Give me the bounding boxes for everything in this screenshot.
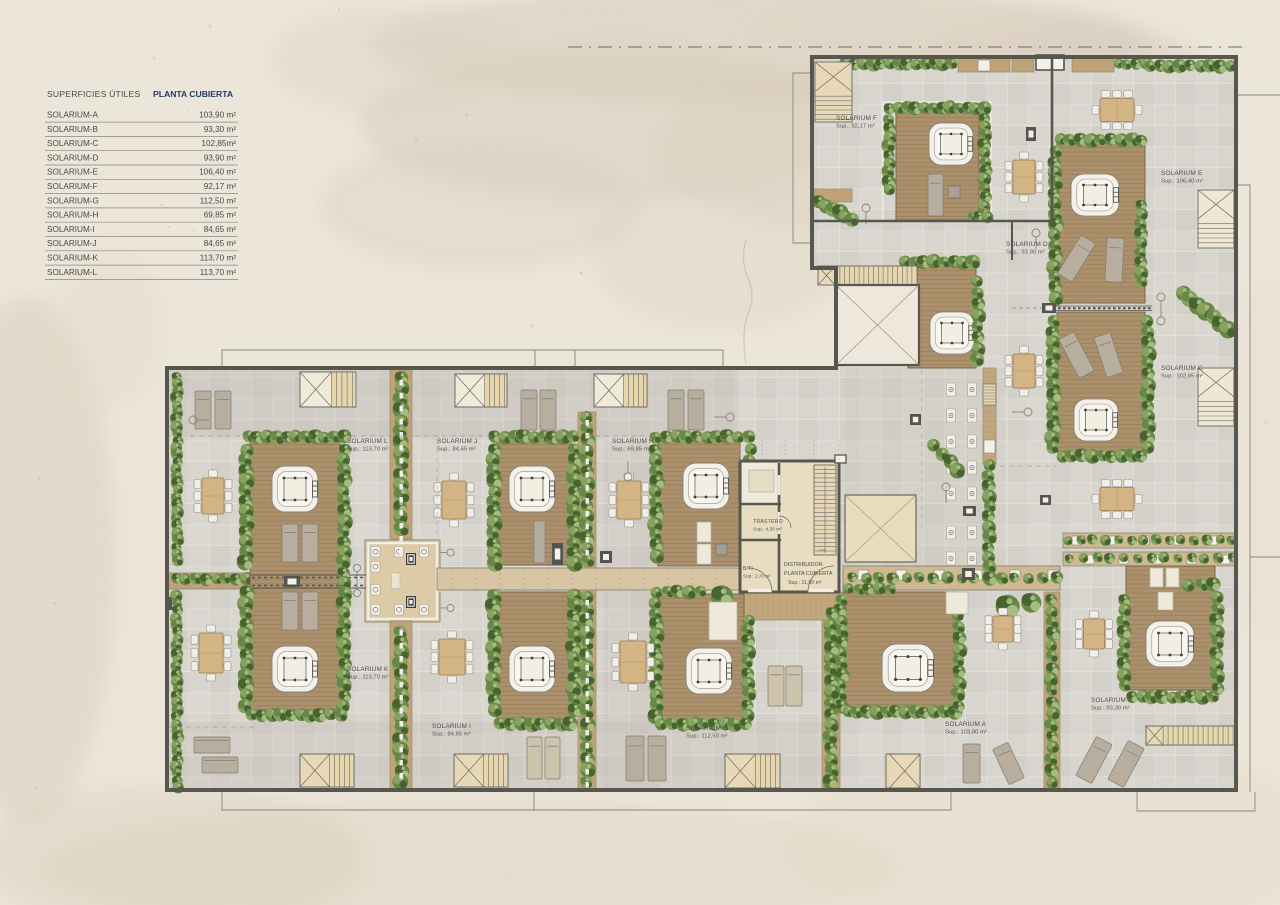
svg-text:SOLARIUM-I: SOLARIUM-I (47, 225, 95, 234)
svg-text:SOLARIUM-E: SOLARIUM-E (47, 168, 98, 177)
svg-text:SOLARIUM-J: SOLARIUM-J (47, 239, 97, 248)
svg-text:113,70 m²: 113,70 m² (200, 254, 237, 263)
svg-text:69,85 m²: 69,85 m² (204, 211, 237, 220)
svg-text:SUPERFICIES ÚTILES: SUPERFICIES ÚTILES (47, 89, 140, 99)
svg-text:B/TI: B/TI (743, 566, 753, 572)
svg-text:84,65 m²: 84,65 m² (204, 239, 237, 248)
svg-text:SOLARIUM-G: SOLARIUM-G (47, 196, 99, 205)
svg-text:Sup.: 102,85 m²: Sup.: 102,85 m² (1161, 374, 1203, 380)
svg-text:Sup.: 2,70 m²: Sup.: 2,70 m² (743, 574, 771, 579)
svg-text:92,17 m²: 92,17 m² (204, 182, 237, 191)
svg-text:Sup.: 112,50 m²: Sup.: 112,50 m² (686, 734, 728, 740)
svg-text:SOLARIUM L: SOLARIUM L (347, 438, 388, 445)
svg-text:Sup.: 92,17 m²: Sup.: 92,17 m² (836, 124, 875, 130)
svg-text:SOLARIUM-F: SOLARIUM-F (47, 182, 98, 191)
svg-text:Sup.: 11,60 m²: Sup.: 11,60 m² (788, 580, 822, 586)
svg-text:SOLARIUM K: SOLARIUM K (347, 666, 389, 673)
svg-text:SOLARIUM I: SOLARIUM I (432, 723, 471, 730)
svg-text:112,50 m²: 112,50 m² (200, 196, 237, 205)
svg-text:SOLARIUM E: SOLARIUM E (1161, 170, 1202, 177)
svg-text:SOLARIUM-B: SOLARIUM-B (47, 125, 98, 134)
svg-text:84,65 m²: 84,65 m² (204, 225, 237, 234)
svg-text:Sup.: 93,30 m²: Sup.: 93,30 m² (1091, 706, 1130, 712)
svg-text:PLANTA CUBIERTA: PLANTA CUBIERTA (153, 89, 233, 99)
svg-text:SOLARIUM A: SOLARIUM A (945, 721, 987, 728)
svg-text:SOLARIUM-K: SOLARIUM-K (47, 254, 98, 263)
svg-text:SOLARIUM D: SOLARIUM D (1006, 241, 1048, 248)
svg-text:SOLARIUM G: SOLARIUM G (686, 725, 728, 732)
svg-text:SOLARIUM-C: SOLARIUM-C (47, 139, 98, 148)
svg-text:93,30 m²: 93,30 m² (204, 125, 237, 134)
svg-text:DISTRIBUIDOR: DISTRIBUIDOR (784, 562, 823, 568)
svg-text:93,90 m²: 93,90 m² (204, 153, 237, 162)
svg-text:SOLARIUM-A: SOLARIUM-A (47, 111, 98, 120)
svg-text:106,40 m²: 106,40 m² (199, 168, 236, 177)
svg-text:SOLARIUM-H: SOLARIUM-H (47, 211, 98, 220)
svg-text:SOLARIUM H: SOLARIUM H (612, 438, 654, 445)
svg-text:Sup.: 84,65 m²: Sup.: 84,65 m² (437, 447, 476, 453)
svg-text:Sup.: 106,40 m²: Sup.: 106,40 m² (1161, 179, 1203, 185)
svg-text:102,85m²: 102,85m² (201, 139, 236, 148)
svg-text:Sup.: 103,90 m²: Sup.: 103,90 m² (945, 730, 987, 736)
svg-text:SOLARIUM B: SOLARIUM B (1091, 697, 1132, 704)
svg-text:SOLARIUM J: SOLARIUM J (437, 438, 477, 445)
svg-text:SOLARIUM F: SOLARIUM F (836, 115, 877, 122)
svg-text:SOLARIUM-L: SOLARIUM-L (47, 268, 97, 277)
svg-text:Sup.: 84,65 m²: Sup.: 84,65 m² (432, 732, 471, 738)
svg-text:Sup.: 93,90 m²: Sup.: 93,90 m² (1006, 250, 1045, 256)
svg-text:Sup.: 4,30 m²: Sup.: 4,30 m² (753, 527, 782, 533)
svg-text:103,90 m²: 103,90 m² (199, 111, 236, 120)
svg-text:Sup.: 113,70 m²: Sup.: 113,70 m² (347, 675, 389, 681)
svg-text:SUBE: SUBE (818, 548, 826, 552)
svg-text:SOLARIUM C: SOLARIUM C (1161, 365, 1203, 372)
svg-text:Sup.: 113,70 m²: Sup.: 113,70 m² (347, 447, 389, 453)
svg-text:SOLARIUM-D: SOLARIUM-D (47, 153, 98, 162)
svg-text:PLANTA CUBIERTA: PLANTA CUBIERTA (784, 571, 833, 577)
svg-text:Sup.: 69,85 m²: Sup.: 69,85 m² (612, 447, 651, 453)
svg-text:TRASTERO: TRASTERO (753, 519, 783, 525)
svg-text:113,70 m²: 113,70 m² (200, 268, 237, 277)
